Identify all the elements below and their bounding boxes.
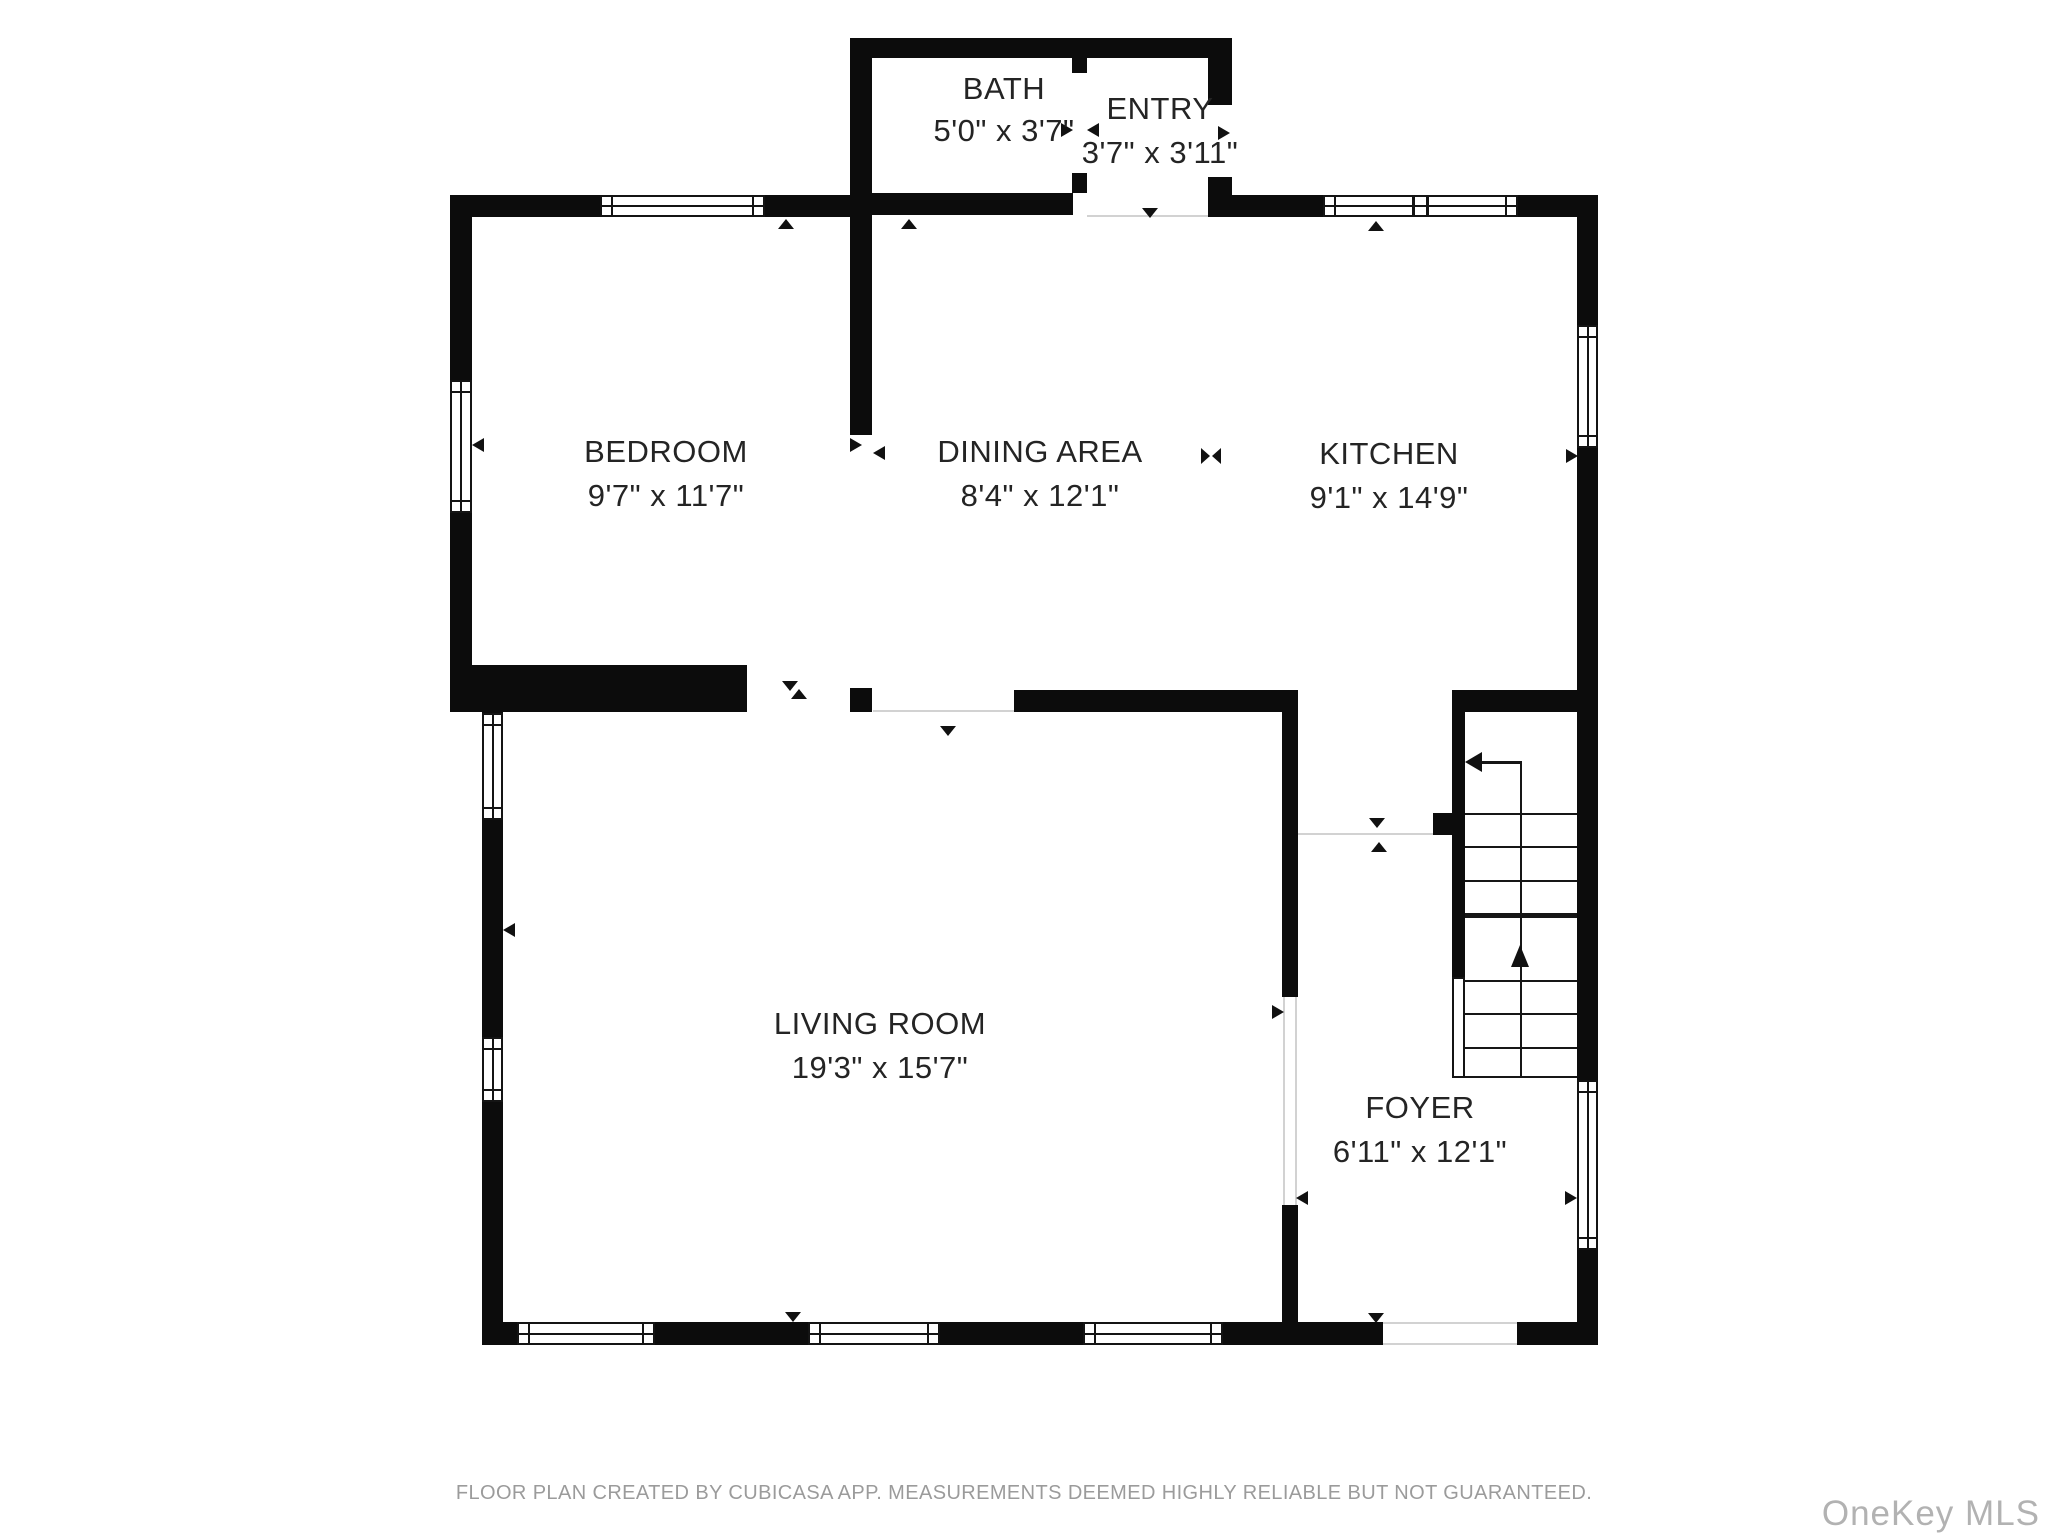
room-label-bedroom: BEDROOM 9'7" x 11'7" xyxy=(584,430,748,518)
window-bedroom-left xyxy=(450,380,472,513)
window-pane-line xyxy=(1579,1237,1596,1239)
room-label-living-room: LIVING ROOM 19'3" x 15'7" xyxy=(774,1002,986,1090)
threshold-front-door-bottom xyxy=(1383,1343,1517,1345)
opening-marker-icon xyxy=(940,726,956,736)
room-name: BEDROOM xyxy=(584,430,748,474)
window-living-bottom-right xyxy=(1083,1322,1223,1345)
window-bedroom-top xyxy=(600,195,765,217)
opening-marker-icon xyxy=(1371,842,1387,852)
wall-kitchen-top-right xyxy=(1518,195,1598,217)
window-pane-line xyxy=(484,1089,501,1091)
window-pane-line xyxy=(484,724,501,726)
window-pane-line xyxy=(452,391,470,393)
room-divider-bowtie-icon xyxy=(1201,448,1210,464)
threshold-living-foyer-left xyxy=(1283,997,1285,1205)
window-pane-line xyxy=(528,1324,530,1343)
wall-right-middle xyxy=(1577,448,1598,1080)
window-pane-line xyxy=(1085,1333,1221,1335)
wall-living-left-top xyxy=(482,690,503,713)
wall-stair-left xyxy=(1452,712,1465,977)
wall-hall-foyer-stub xyxy=(1433,813,1452,835)
window-marker-icon xyxy=(901,219,917,229)
room-dimensions: 19'3" x 15'7" xyxy=(774,1046,986,1090)
window-pane-line xyxy=(1579,435,1596,437)
room-dimensions: 6'11" x 12'1" xyxy=(1333,1130,1507,1174)
window-pane-line xyxy=(1579,1091,1596,1093)
window-pane-line xyxy=(1505,197,1507,215)
window-pane-line xyxy=(460,382,462,511)
threshold-dining-living xyxy=(873,710,1014,712)
onekey-mls-watermark: OneKey MLS xyxy=(1822,1494,2040,1534)
window-marker-icon xyxy=(1565,1191,1577,1205)
room-label-entry: ENTRY 3'7" x 3'11" xyxy=(1082,87,1238,175)
threshold-hall-foyer xyxy=(1298,833,1433,835)
window-pane-line xyxy=(484,1048,501,1050)
room-name: LIVING ROOM xyxy=(774,1002,986,1046)
wall-dining-bottom xyxy=(1014,690,1298,712)
wall-bottom-e xyxy=(1517,1322,1577,1345)
wall-living-left-bottom xyxy=(482,1102,503,1345)
wall-bath-right-bottom xyxy=(1072,173,1087,193)
door-arrow-icon xyxy=(850,438,862,452)
window-marker-icon xyxy=(503,923,515,937)
window-pane-line xyxy=(1587,327,1589,446)
disclaimer-text: FLOOR PLAN CREATED BY CUBICASA APP. MEAS… xyxy=(0,1482,2048,1505)
room-dimensions: 9'1" x 14'9" xyxy=(1310,476,1469,520)
staircase xyxy=(1465,712,1577,1078)
room-divider-bowtie-icon xyxy=(1212,448,1221,464)
stair-center-divider xyxy=(1520,762,1522,1078)
window-pane-line xyxy=(452,500,470,502)
wall-bottom-d xyxy=(1223,1322,1383,1345)
room-label-dining-area: DINING AREA 8'4" x 12'1" xyxy=(937,430,1142,518)
window-pane-line xyxy=(819,1324,821,1343)
window-marker-icon xyxy=(1566,449,1578,463)
room-name: ENTRY xyxy=(1082,87,1238,131)
wall-bedroom-left-upper xyxy=(450,217,472,380)
wall-right-upper xyxy=(1577,217,1598,325)
wall-right-lower xyxy=(1577,1250,1598,1345)
stair-up-arrow-icon xyxy=(1511,945,1529,967)
room-dimensions: 8'4" x 12'1" xyxy=(937,474,1142,518)
wall-kitchen-top-left xyxy=(1232,195,1323,217)
opening-marker-icon xyxy=(791,689,807,699)
window-pane-line xyxy=(602,205,763,207)
room-label-foyer: FOYER 6'11" x 12'1" xyxy=(1333,1086,1507,1174)
room-dimensions: 9'7" x 11'7" xyxy=(584,474,748,518)
wall-entry-right-bottom xyxy=(1208,177,1232,217)
front-door-marker-icon xyxy=(1368,1313,1384,1323)
window-pane-line xyxy=(611,197,613,215)
room-name: FOYER xyxy=(1333,1086,1507,1130)
wall-bottom-c xyxy=(940,1322,1083,1345)
room-label-bath: BATH 5'0" x 3'7" xyxy=(933,68,1074,152)
room-dimensions: 5'0" x 3'7" xyxy=(933,110,1074,152)
window-pane-line xyxy=(927,1324,929,1343)
wall-bedroom-left-lower xyxy=(450,513,472,665)
room-name: BATH xyxy=(933,68,1074,110)
floor-plan: BATH 5'0" x 3'7" ENTRY 3'7" x 3'11" BEDR… xyxy=(0,0,2048,1536)
window-pane-line xyxy=(1334,197,1336,215)
window-pane-line xyxy=(1094,1324,1096,1343)
window-pane-line xyxy=(1210,1324,1212,1343)
window-pane-line xyxy=(642,1324,644,1343)
wall-kitchen-bottom xyxy=(1452,690,1598,712)
wall-bath-left-bedroom-dining xyxy=(850,38,872,435)
room-label-kitchen: KITCHEN 9'1" x 14'9" xyxy=(1310,432,1469,520)
opening-marker-icon xyxy=(1296,1191,1308,1205)
threshold-front-door-top xyxy=(1383,1322,1517,1324)
wall-bottom-b xyxy=(655,1322,808,1345)
wall-bedroom-dining-stub xyxy=(850,688,872,712)
wall-living-foyer-lower xyxy=(1282,1205,1298,1322)
opening-marker-icon xyxy=(1142,208,1158,218)
window-living-left-upper xyxy=(482,713,503,820)
wall-bedroom-top-left xyxy=(450,195,600,217)
stair-up-arrow-left-icon xyxy=(1465,752,1482,772)
door-arrow-icon xyxy=(873,446,885,460)
window-marker-icon xyxy=(1368,221,1384,231)
window-living-bottom-middle xyxy=(808,1322,940,1345)
window-pane-line xyxy=(1325,205,1516,207)
stair-railing xyxy=(1452,977,1465,1078)
window-pane-line xyxy=(484,807,501,809)
window-pane-line xyxy=(1587,1082,1589,1248)
window-marker-icon xyxy=(785,1312,801,1322)
opening-marker-icon xyxy=(1369,818,1385,828)
wall-living-left-middle xyxy=(482,820,503,1037)
window-kitchen-top xyxy=(1323,195,1518,217)
window-marker-icon xyxy=(778,219,794,229)
window-foyer-right xyxy=(1577,1080,1598,1250)
window-pane-line xyxy=(752,197,754,215)
window-pane-line xyxy=(810,1333,938,1335)
room-name: DINING AREA xyxy=(937,430,1142,474)
wall-bottom-a xyxy=(482,1322,517,1345)
wall-bath-bottom xyxy=(872,193,1073,215)
window-pane-line xyxy=(1579,336,1596,338)
wall-bath-entry-top xyxy=(850,38,1232,58)
window-marker-icon xyxy=(472,438,484,452)
room-name: KITCHEN xyxy=(1310,432,1469,476)
wall-living-foyer-upper xyxy=(1282,712,1298,997)
window-pane-line xyxy=(492,715,494,818)
threshold-living-foyer-right xyxy=(1295,997,1297,1205)
wall-bedroom-top-right xyxy=(765,195,852,217)
window-living-left-lower xyxy=(482,1037,503,1102)
window-kitchen-right xyxy=(1577,325,1598,448)
stair-direction-line xyxy=(1482,761,1522,764)
room-dimensions: 3'7" x 3'11" xyxy=(1082,131,1238,175)
window-living-bottom-left xyxy=(517,1322,655,1345)
window-pane-line xyxy=(519,1333,653,1335)
opening-marker-icon xyxy=(1272,1005,1284,1019)
